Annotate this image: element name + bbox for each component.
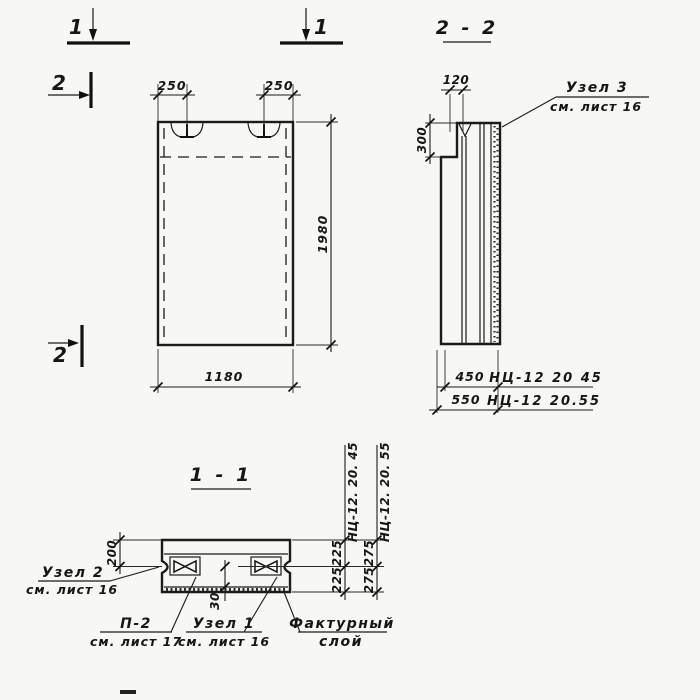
column-header-55: НЦ-12. 20. 55 — [378, 442, 392, 542]
dim-200-value: 200 — [105, 540, 119, 567]
column-header-45: НЦ-12. 20. 45 — [346, 442, 360, 542]
technical-drawing: 1 1 2 2 — [0, 0, 700, 700]
dim-550-value: 550 — [451, 392, 480, 407]
dim-250-right-value: 250 — [264, 78, 293, 93]
dim-275-bottom: 275 — [362, 567, 376, 594]
uzel-1-label: Узел 1 — [193, 616, 255, 632]
cut-2-bottom-label: 2 — [53, 343, 67, 367]
facing-layer-label-2: слой — [319, 634, 363, 650]
dim-1180-value: 1180 — [205, 369, 244, 384]
uzel-1-reference: см. лист 16 — [178, 634, 270, 649]
dim-275-top: 275 — [362, 540, 376, 567]
dim-225-bottom: 225 — [330, 567, 344, 594]
dim-450-value: 450 — [454, 369, 484, 384]
uzel-2-reference: см. лист 16 — [26, 582, 118, 597]
dim-1980-value: 1980 — [315, 215, 330, 254]
panel-mark-55: НЦ-12 20.55 — [487, 394, 601, 409]
panel-mark-45: НЦ-12 20 45 — [489, 371, 603, 386]
dim-120-value: 120 — [443, 73, 470, 87]
facing-layer-label: Фактурный — [289, 616, 395, 632]
uzel-3-label: Узел 3 — [566, 80, 628, 96]
cut-1-right-label: 1 — [314, 15, 328, 39]
cut-2-top-label: 2 — [52, 71, 66, 95]
dim-30-value: 30 — [208, 592, 222, 610]
section-2-2-title: 2 - 2 — [436, 17, 499, 39]
dim-225-top: 225 — [330, 540, 344, 567]
section-1-1-title: 1 - 1 — [190, 464, 253, 486]
drawing-sheet: 1 1 2 2 — [0, 0, 700, 700]
uzel-3-reference: см. лист 16 — [550, 99, 642, 114]
p2-reference: см. лист 17 — [90, 634, 182, 649]
dim-250-left-value: 250 — [157, 78, 186, 93]
uzel-2-label: Узел 2 — [42, 565, 104, 581]
panel-body — [158, 122, 293, 345]
cut-1-left-label: 1 — [69, 15, 83, 39]
dim-300-value: 300 — [415, 127, 429, 154]
scan-artifact — [120, 690, 136, 694]
p2-label: П-2 — [120, 616, 152, 632]
